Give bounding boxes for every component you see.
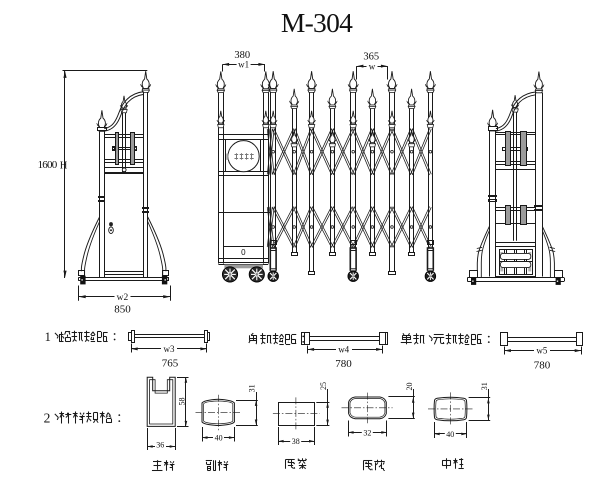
svg-text:0: 0: [241, 248, 246, 257]
svg-text:20: 20: [405, 383, 414, 391]
svg-text:2: 2: [44, 411, 51, 426]
svg-text:765: 765: [162, 358, 179, 370]
svg-text:w1: w1: [238, 60, 249, 70]
svg-text:40: 40: [215, 433, 223, 442]
svg-text:H: H: [60, 161, 68, 172]
svg-text:40: 40: [446, 430, 454, 439]
svg-text:31: 31: [480, 382, 489, 390]
svg-text:w3: w3: [164, 344, 175, 354]
svg-text:780: 780: [335, 358, 352, 370]
svg-text:780: 780: [534, 360, 551, 372]
svg-text:w5: w5: [536, 346, 547, 356]
svg-text:58: 58: [177, 398, 186, 406]
svg-text:25: 25: [319, 382, 328, 390]
svg-text:w: w: [369, 61, 376, 71]
svg-text:850: 850: [114, 304, 131, 316]
svg-text:w2: w2: [117, 293, 129, 303]
svg-text:1: 1: [45, 330, 51, 344]
svg-text:1600: 1600: [38, 159, 58, 171]
svg-text:w4: w4: [338, 345, 349, 355]
svg-text:32: 32: [363, 428, 371, 437]
svg-text:31: 31: [248, 384, 257, 392]
svg-text:36: 36: [156, 440, 164, 449]
svg-text:38: 38: [292, 437, 300, 446]
svg-text:M-304: M-304: [281, 7, 353, 38]
